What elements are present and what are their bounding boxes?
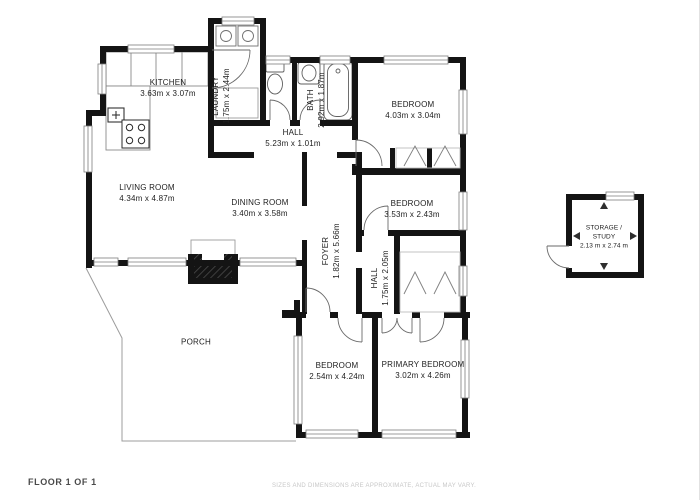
room-dims: 4.34m x 4.87m xyxy=(119,193,175,204)
room-dims: 3.02m x 4.26m xyxy=(382,370,465,381)
room-label-bedroom-top: BEDROOM 4.03m x 3.04m xyxy=(385,99,441,121)
room-name: DINING ROOM xyxy=(231,197,288,208)
room-dims: 2.54m x 4.24m xyxy=(309,371,365,382)
kitchen-fixtures xyxy=(106,52,208,150)
room-name: HALL xyxy=(369,250,380,306)
room-name: BEDROOM xyxy=(309,360,365,371)
room-label-bath: BATH 2.92m x 1.87m xyxy=(305,72,327,128)
room-name: LAUNDRY xyxy=(210,68,221,124)
room-label-hall-upper: HALL 5.23m x 1.01m xyxy=(265,127,321,149)
room-dims: 3.53m x 2.43m xyxy=(384,209,440,220)
room-name: PORCH xyxy=(181,337,211,348)
stove-icon xyxy=(122,120,149,148)
room-label-bedroom-bottom: BEDROOM 2.54m x 4.24m xyxy=(309,360,365,382)
dimensions-disclaimer: SIZES AND DIMENSIONS ARE APPROXIMATE, AC… xyxy=(272,483,476,489)
room-label-dining-room: DINING ROOM 3.40m x 3.58m xyxy=(231,197,288,219)
room-name: KITCHEN xyxy=(140,77,196,88)
room-dims: 5.23m x 1.01m xyxy=(265,138,321,149)
room-name: BATH xyxy=(305,72,316,128)
porch-outline xyxy=(86,268,296,441)
room-dims: 2.13 m x 2.74 m xyxy=(580,242,628,251)
room-label-primary-bedroom: PRIMARY BEDROOM 3.02m x 4.26m xyxy=(382,359,465,381)
room-name: HALL xyxy=(265,127,321,138)
toilet-icon xyxy=(266,62,284,94)
floor-plan-page: KITCHEN 3.63m x 3.07m LAUNDRY 1.75m x 2.… xyxy=(0,0,700,500)
room-name: BEDROOM xyxy=(385,99,441,110)
room-name: FOYER xyxy=(320,223,331,279)
room-name: BEDROOM xyxy=(384,198,440,209)
room-label-foyer: FOYER 1.82m x 5.66m xyxy=(320,223,342,279)
floor-indicator: FLOOR 1 OF 1 xyxy=(28,477,97,487)
room-name: STORAGE / STUDY xyxy=(582,224,626,242)
room-name: LIVING ROOM xyxy=(119,182,175,193)
room-label-storage-study: STORAGE / STUDY 2.13 m x 2.74 m xyxy=(580,224,628,251)
room-label-living-room: LIVING ROOM 4.34m x 4.87m xyxy=(119,182,175,204)
room-label-hall-lower: HALL 1.75m x 2.05m xyxy=(369,250,391,306)
room-dims: 3.40m x 3.58m xyxy=(231,208,288,219)
room-dims: 2.92m x 1.87m xyxy=(316,72,327,128)
room-dims: 1.75m x 2.44m xyxy=(221,68,232,124)
room-label-laundry: LAUNDRY 1.75m x 2.44m xyxy=(210,68,232,124)
room-label-porch: PORCH xyxy=(181,337,211,348)
room-label-bedroom-middle: BEDROOM 3.53m x 2.43m xyxy=(384,198,440,220)
room-name: PRIMARY BEDROOM xyxy=(382,359,465,370)
bathtub-icon xyxy=(324,60,352,120)
room-dims: 4.03m x 3.04m xyxy=(385,110,441,121)
room-dims: 3.63m x 3.07m xyxy=(140,88,196,99)
room-label-kitchen: KITCHEN 3.63m x 3.07m xyxy=(140,77,196,99)
room-dims: 1.82m x 5.66m xyxy=(331,223,342,279)
room-dims: 1.75m x 2.05m xyxy=(380,250,391,306)
